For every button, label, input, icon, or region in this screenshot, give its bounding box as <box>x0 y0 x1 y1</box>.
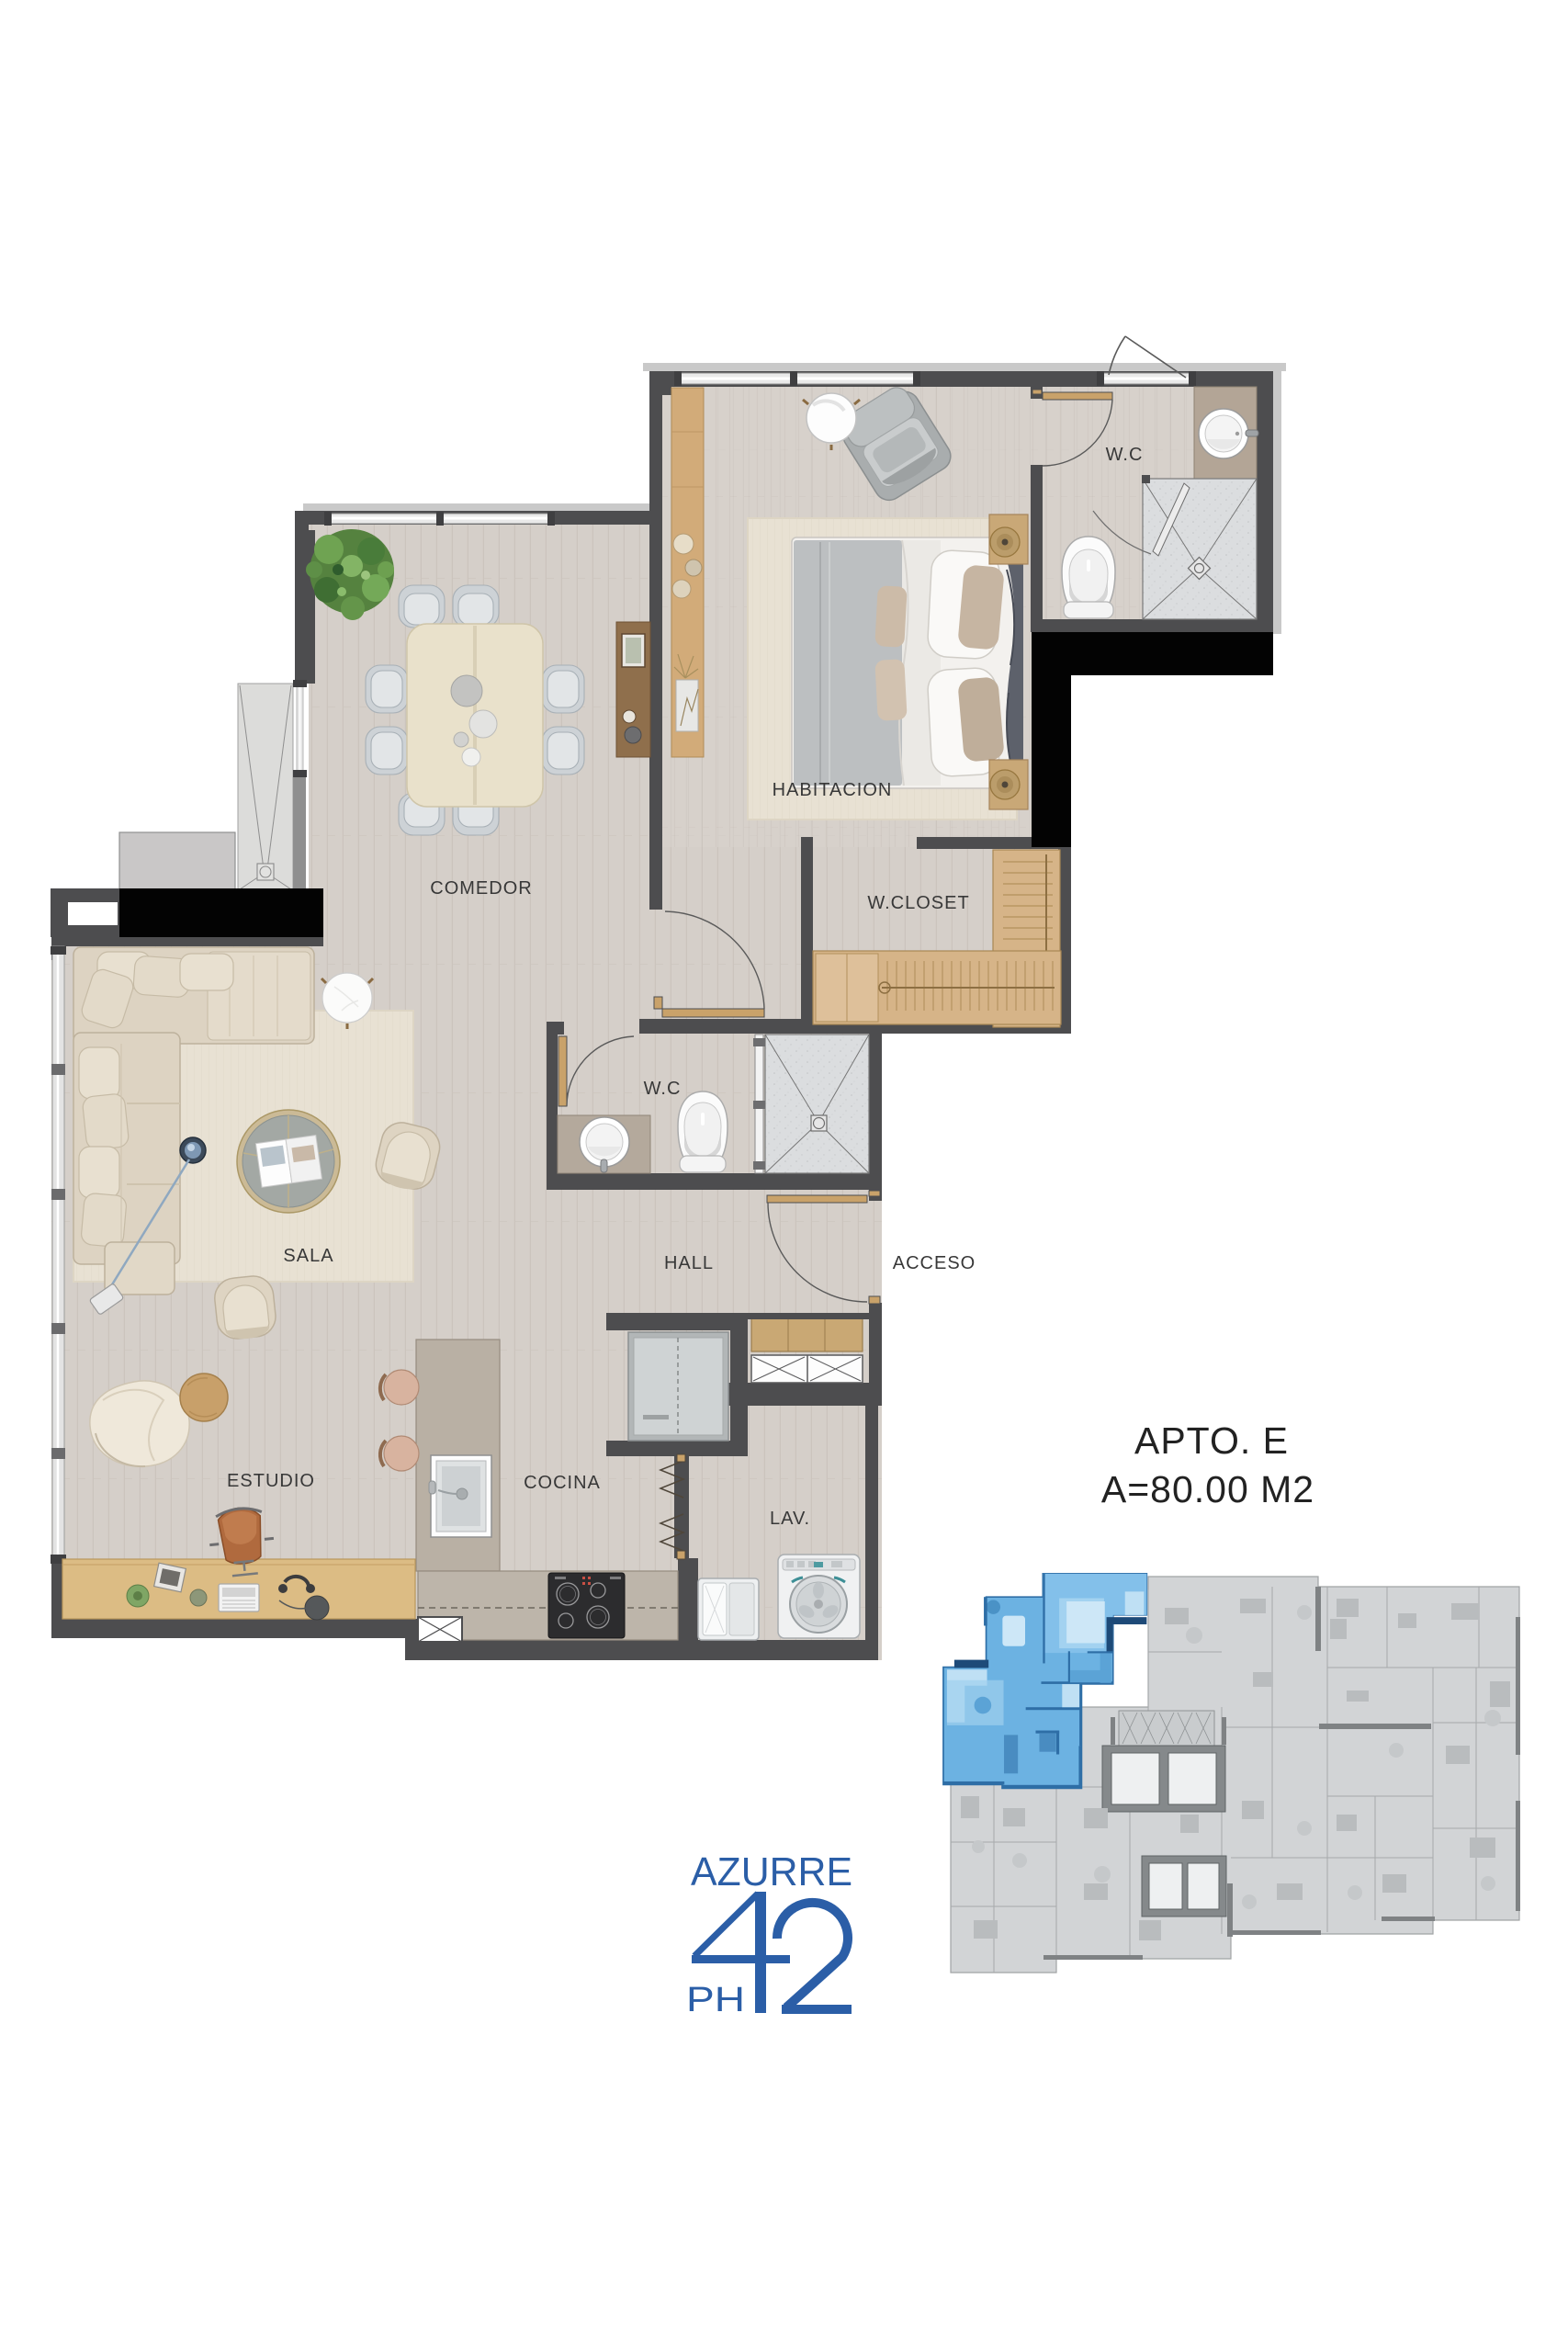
svg-text:AZURRE: AZURRE <box>691 1849 852 1894</box>
svg-text:LAV.: LAV. <box>770 1509 810 1529</box>
svg-text:W.CLOSET: W.CLOSET <box>867 893 969 913</box>
svg-text:COMEDOR: COMEDOR <box>430 878 532 899</box>
svg-text:SALA: SALA <box>283 1246 333 1266</box>
svg-text:W.C: W.C <box>644 1079 682 1099</box>
svg-text:ESTUDIO: ESTUDIO <box>227 1471 315 1491</box>
svg-text:APTO. E: APTO. E <box>1134 1419 1289 1462</box>
svg-text:ACCESO: ACCESO <box>893 1253 976 1273</box>
svg-text:PH: PH <box>686 1981 745 2019</box>
svg-text:COCINA: COCINA <box>524 1473 601 1493</box>
svg-text:A=80.00 M2: A=80.00 M2 <box>1101 1468 1314 1510</box>
svg-text:HABITACION: HABITACION <box>773 780 893 800</box>
svg-text:HALL: HALL <box>664 1253 714 1273</box>
svg-text:W.C: W.C <box>1106 445 1144 465</box>
